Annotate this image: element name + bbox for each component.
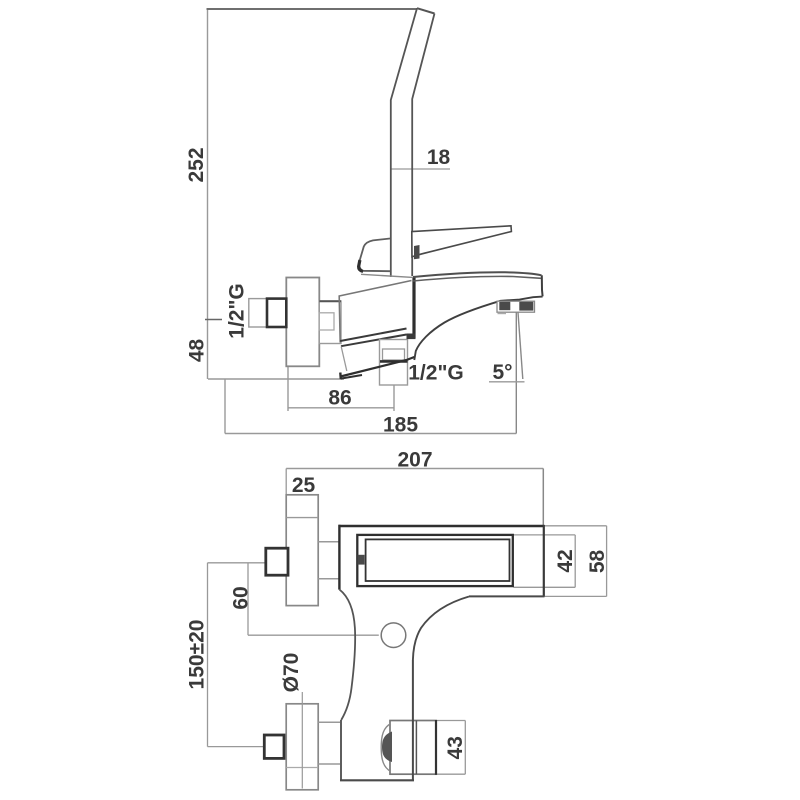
svg-text:42: 42 [554, 549, 577, 572]
svg-text:1/2"G: 1/2"G [408, 362, 463, 385]
svg-text:Ø70: Ø70 [280, 653, 303, 693]
svg-text:207: 207 [397, 448, 432, 471]
svg-text:18: 18 [427, 146, 451, 169]
svg-text:1/2"G: 1/2"G [226, 283, 249, 338]
svg-text:43: 43 [444, 736, 467, 759]
svg-text:150±20: 150±20 [186, 620, 209, 690]
svg-text:48: 48 [186, 339, 209, 363]
svg-text:60: 60 [230, 586, 253, 609]
svg-text:5°: 5° [492, 361, 512, 384]
svg-text:25: 25 [292, 474, 316, 497]
svg-text:58: 58 [586, 550, 609, 574]
svg-text:252: 252 [185, 147, 208, 182]
svg-text:86: 86 [328, 387, 351, 410]
svg-text:185: 185 [383, 414, 418, 437]
